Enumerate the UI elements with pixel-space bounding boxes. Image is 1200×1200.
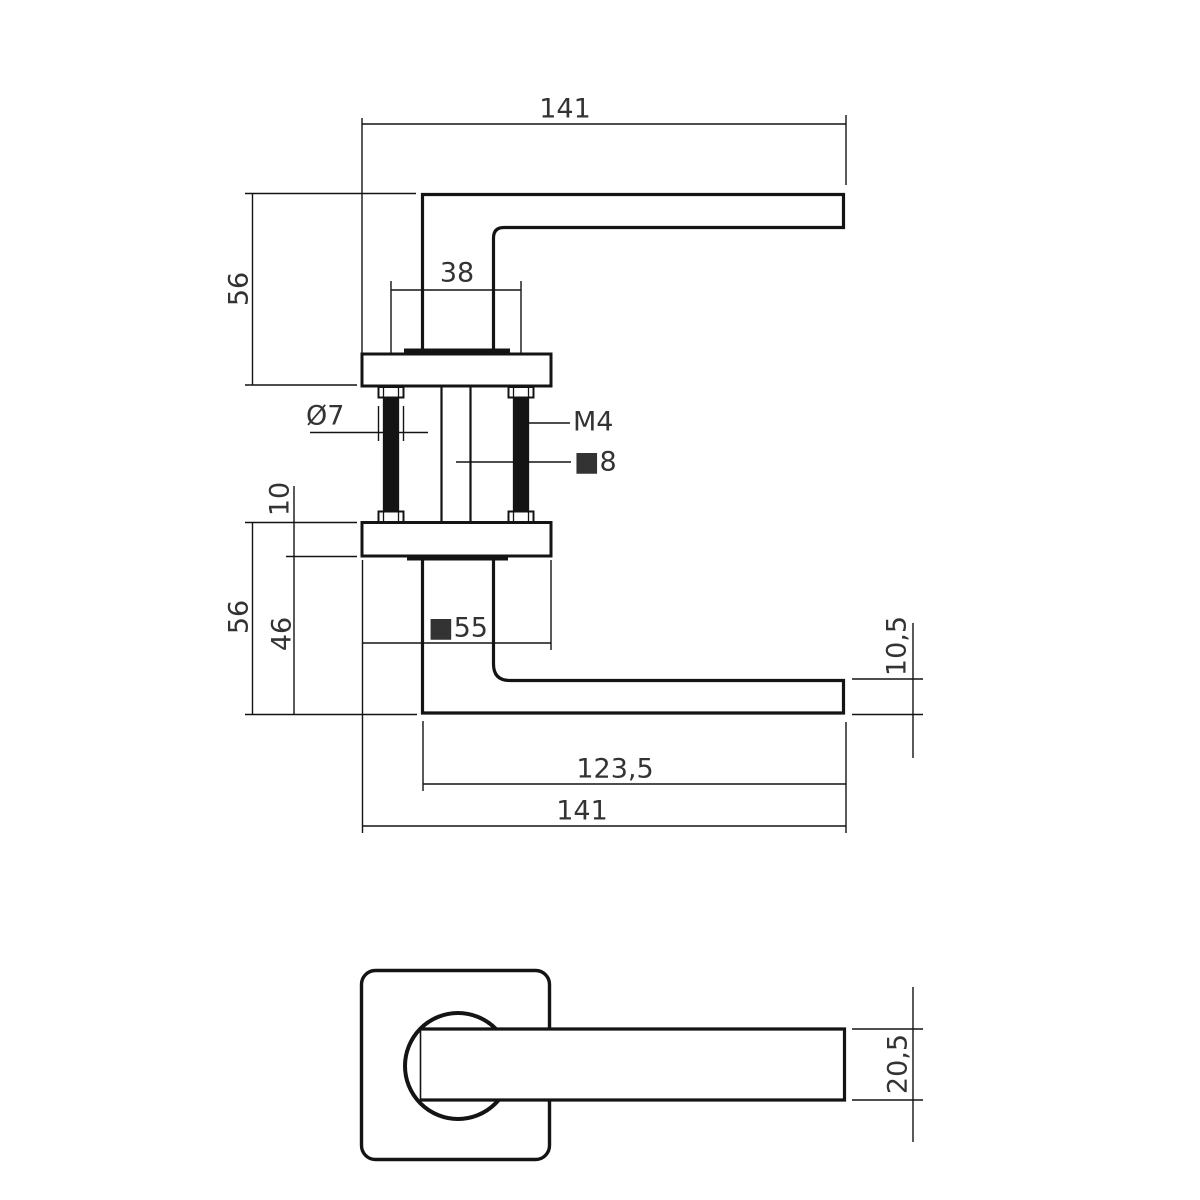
dim-label-sq8: ■8: [574, 449, 617, 476]
dim-label-105: 10,5: [884, 616, 911, 676]
front-view-lever-fill: [420, 1029, 846, 1100]
dim-label-bottom-141: 141: [556, 798, 608, 825]
dim-label-top-56: 56: [226, 272, 253, 306]
dim-label-bottom-56: 56: [226, 600, 253, 634]
top-view-lever-outline: [423, 195, 844, 353]
dim-label-m4: M4: [573, 409, 613, 436]
dim-label-1235: 123,5: [576, 756, 653, 783]
left-screw-top-nut: [379, 387, 404, 398]
top-view-rose: [362, 354, 551, 386]
dim-label-10: 10: [267, 482, 294, 516]
right-screw-threaded-rod: [514, 397, 529, 512]
left-screw-threaded-rod: [384, 397, 399, 512]
spindle-lines: [442, 386, 471, 522]
right-screw-top-nut: [509, 387, 534, 398]
dim-label-d7: Ø7: [306, 403, 344, 430]
dim-label-38: 38: [440, 260, 474, 287]
dim-label-46: 46: [269, 617, 296, 651]
drawing-sheet: 141 56 38 Ø7 M4 ■8 10 56 46 ■55 10,5 123…: [0, 0, 1200, 1200]
dim-label-205: 20,5: [885, 1034, 912, 1094]
nut-facet-lines: [384, 387, 529, 522]
technical-drawing-canvas: [0, 0, 1200, 1200]
dimension-lines: [245, 115, 923, 1142]
right-screw-bottom-nut: [509, 512, 534, 523]
bottom-view-rose: [362, 523, 551, 557]
dim-label-sq55: ■55: [428, 615, 488, 642]
left-screw-bottom-nut: [379, 512, 404, 523]
fasteners: [379, 386, 534, 522]
dim-label-top-141: 141: [539, 96, 591, 123]
bottom-view-collar-strip: [407, 556, 508, 561]
